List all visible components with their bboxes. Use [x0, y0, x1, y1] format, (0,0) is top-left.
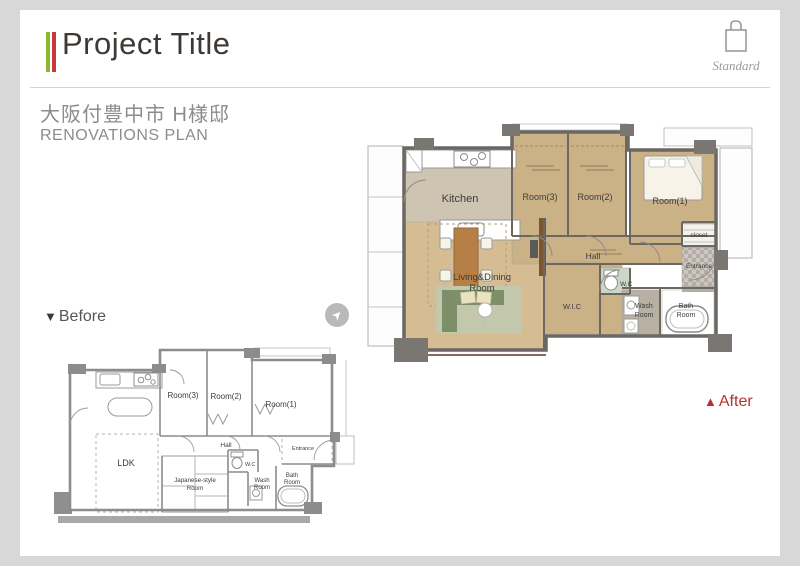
- arrow-circle-icon: ➤: [325, 303, 349, 327]
- after-label-wic: W.I.C: [563, 302, 582, 311]
- before-label: ▼Before: [44, 308, 106, 326]
- before-toilet-icon: [232, 458, 242, 469]
- header-divider: [30, 87, 770, 88]
- before-label-wash-2: Room: [254, 485, 270, 491]
- before-label-entrance: Entrance: [292, 446, 314, 452]
- before-label-room1: Room(1): [265, 400, 296, 409]
- before-label-hall: Hall: [220, 442, 232, 449]
- before-label-room2: Room(2): [210, 392, 241, 401]
- after-label: ▲After: [704, 393, 753, 411]
- after-chair: [440, 238, 451, 249]
- after-plant: [478, 303, 492, 317]
- after-label-bath-1: Bath: [679, 303, 694, 310]
- after-label-kitchen: Kitchen: [442, 193, 479, 205]
- after-label-wc: W.C: [620, 281, 633, 288]
- before-top-balcony: [254, 348, 330, 356]
- after-label-room1: Room(1): [652, 196, 687, 206]
- before-label-bath-1: Bath: [286, 473, 298, 479]
- before-label-ldk: LDK: [117, 458, 135, 468]
- after-label-wash-1: Wash: [635, 303, 653, 310]
- after-label-entrance: Entrance: [686, 263, 712, 270]
- slide-root: Project Title Standard 大阪付豊中市 H様邸 RENOVA…: [0, 0, 800, 566]
- after-label-bath-2: Room: [677, 312, 696, 319]
- standard-badge: Standard: [700, 18, 772, 74]
- before-label-wc: W.C: [245, 462, 255, 468]
- before-floorplan: Room(3) Room(2) Room(1) Hall LDK Japanes…: [50, 340, 365, 535]
- project-location-jp: 大阪付豊中市 H様邸: [40, 98, 230, 127]
- before-toilet-tank: [231, 452, 243, 457]
- project-plan-en: RENOVATIONS PLAN: [40, 127, 208, 145]
- after-toilet-icon: [605, 276, 618, 290]
- after-label-closet: closet: [691, 232, 708, 239]
- standard-label: Standard: [700, 58, 772, 74]
- before-label-japanese-1: Japanese-style: [174, 477, 216, 484]
- after-label-hall: Hall: [586, 251, 601, 261]
- after-sofa-arm: [442, 290, 457, 332]
- before-tatami-grid: [162, 456, 228, 512]
- after-pillow: [649, 159, 665, 167]
- bag-icon: [718, 18, 754, 56]
- after-triangle-icon: ▲: [704, 394, 717, 409]
- after-wic-floor: [544, 262, 600, 334]
- before-label-room3: Room(3): [167, 391, 198, 400]
- after-room-room2-floor: [568, 132, 626, 236]
- page-title: Project Title: [62, 26, 230, 62]
- after-label-wash-2: Room: [635, 312, 654, 319]
- before-triangle-icon: ▼: [44, 309, 57, 324]
- after-label-room3: Room(3): [522, 192, 557, 202]
- after-floorplan: Kitchen Room(3) Room(2) Room(1) closet H…: [364, 122, 760, 380]
- after-label-living-1: Living&Dining: [453, 272, 511, 283]
- after-label-room2: Room(2): [577, 192, 612, 202]
- before-label-japanese-2: Room: [187, 485, 204, 492]
- after-tv: [530, 240, 538, 258]
- after-chair: [440, 270, 451, 281]
- title-accent-green-bar: [46, 32, 50, 72]
- after-balcony-right: [720, 148, 752, 258]
- after-washing-machine: [624, 319, 638, 333]
- after-balcony-left: [368, 146, 403, 346]
- before-peninsula-counter: [108, 398, 152, 416]
- after-pillow: [669, 159, 685, 167]
- title-accent-red-bar: [52, 32, 56, 72]
- before-label-bath-2: Room: [284, 480, 300, 486]
- after-chair: [481, 238, 492, 249]
- after-label-living-2: Room: [469, 283, 494, 294]
- before-floor-top: [160, 350, 252, 370]
- before-balcony-band: [58, 516, 310, 523]
- before-floor-top2: [252, 360, 334, 370]
- before-label-wash-1: Wash: [254, 478, 269, 484]
